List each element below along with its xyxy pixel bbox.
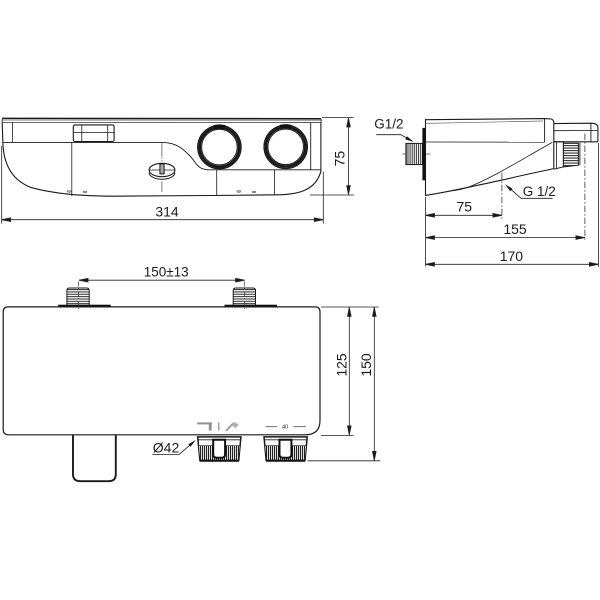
svg-text:314: 314 xyxy=(155,203,179,219)
svg-text:155: 155 xyxy=(503,221,527,237)
svg-text:125: 125 xyxy=(333,353,349,377)
svg-text:Ø42: Ø42 xyxy=(153,439,180,455)
svg-text:150±13: 150±13 xyxy=(144,264,189,279)
svg-text:170: 170 xyxy=(500,248,524,264)
svg-text:G 1/2: G 1/2 xyxy=(523,184,556,199)
svg-text:75: 75 xyxy=(332,151,348,167)
svg-text:40: 40 xyxy=(282,425,288,431)
svg-text:75: 75 xyxy=(457,198,473,214)
svg-text:G1/2: G1/2 xyxy=(374,117,403,132)
svg-text:150: 150 xyxy=(358,353,374,377)
